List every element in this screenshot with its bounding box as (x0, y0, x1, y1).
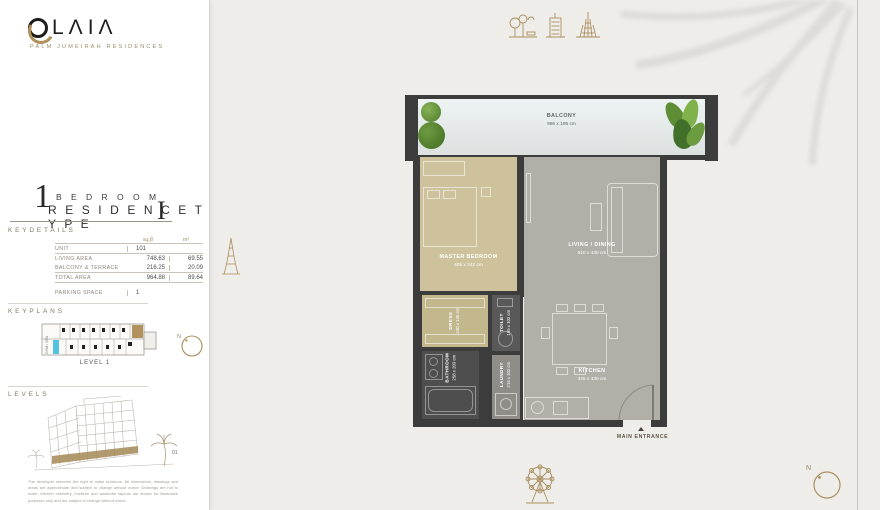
disclaimer-text: The developer reserves the right to make… (28, 479, 178, 504)
chair (574, 304, 586, 312)
compass-icon: N (802, 458, 848, 504)
plant-icon (418, 122, 445, 149)
tv-unit (526, 173, 531, 223)
table-row-parking: PARKING SPACE 1 (55, 288, 203, 297)
wardrobe (423, 161, 465, 176)
building-icon (546, 13, 565, 37)
chair (556, 304, 568, 312)
pillow (443, 190, 456, 199)
table-row-balcony-terrace: BALCONY & TERRACE 216.25 20.09 (55, 263, 203, 273)
column-header-sqm: m² (169, 237, 203, 243)
keydetails-table: sq.ft m² UNIT 101 LIVING AREA 748.63 69.… (55, 237, 203, 297)
highlighted-unit (132, 325, 143, 338)
dress-dims: 240 x 145 cm (455, 308, 461, 334)
main-entrance-label: MAIN ENTRANCE (595, 434, 690, 440)
title-bedroom-label: B E D R O O M (56, 192, 160, 202)
brand-logo: LΛIΛ (28, 16, 118, 40)
entrance-door-arc (613, 377, 661, 425)
burj-khalifa-icon (576, 12, 600, 37)
skyline-icons (508, 10, 608, 48)
logo-text: LΛIΛ (52, 16, 118, 40)
sink (531, 401, 544, 414)
north-label: N (806, 465, 811, 472)
bathroom-dims: 258 x 203 cm (451, 353, 457, 383)
bathroom-label: BATHROOM (444, 353, 451, 383)
page-edge-line (857, 0, 858, 510)
washer-door (500, 398, 512, 410)
highlighted-level-band (52, 446, 138, 464)
column-header-sqft: sq.ft (127, 237, 169, 243)
logo-o-ring-icon (28, 18, 48, 38)
brochure-page: LΛIΛ PALM JUMEIRAH RESIDENCES 1 B E D R … (0, 0, 880, 510)
ferris-wheel-icon (521, 462, 561, 506)
wall (517, 155, 524, 297)
entrance-marker-icon (638, 427, 644, 431)
pillow (427, 190, 440, 199)
coffee-table (590, 203, 602, 231)
keyplan-level-label: LEVEL 1 (60, 360, 130, 366)
building-elevation-sketch: 01 (22, 396, 186, 483)
keyplan-north-label: N (177, 334, 181, 340)
chair (541, 327, 550, 339)
plant-icon (421, 102, 441, 122)
level-tag: 01 (172, 450, 178, 456)
keyplan-compass-icon: N (176, 330, 206, 360)
chair (609, 327, 618, 339)
table-row-unit: UNIT 101 (55, 243, 203, 254)
brand-tagline: PALM JUMEIRAH RESIDENCES (30, 44, 164, 50)
divider (8, 303, 148, 304)
keyplans-heading: KEYPLANS (8, 308, 65, 315)
laundry-label: LAUNDRY (499, 362, 506, 388)
landmark-tower-icon (220, 236, 242, 276)
hob (553, 401, 568, 415)
toilet-dims: 195 x 102 cm (506, 310, 512, 336)
bathtub-inner (428, 389, 473, 412)
laundry-dims: 216 x 102 cm (506, 362, 512, 388)
divider (8, 386, 148, 387)
pool-marker (53, 340, 59, 354)
table-row-total-area: TOTAL AREA 964.88 89.64 (55, 273, 203, 283)
floor-plan: BALCONY 995 x 195 cm MASTER BEDROOM 405 … (405, 95, 720, 440)
chair (592, 304, 604, 312)
table-row-living-area: LIVING AREA 748.63 69.55 (55, 254, 203, 263)
nightstand (481, 187, 491, 197)
wall (405, 95, 418, 161)
chair (556, 367, 568, 375)
room-balcony (418, 99, 705, 155)
chair (574, 367, 586, 375)
sidebar: LΛIΛ PALM JUMEIRAH RESIDENCES 1 B E D R … (0, 0, 210, 510)
park-trees-icon (509, 15, 537, 37)
divider (10, 221, 172, 222)
wall (660, 157, 667, 427)
gym-spa-label: GYM / SPA (45, 335, 49, 354)
dining-table (552, 313, 607, 365)
keydetails-heading: KEYDETAILS (8, 227, 76, 234)
sofa-cushions (611, 187, 623, 253)
